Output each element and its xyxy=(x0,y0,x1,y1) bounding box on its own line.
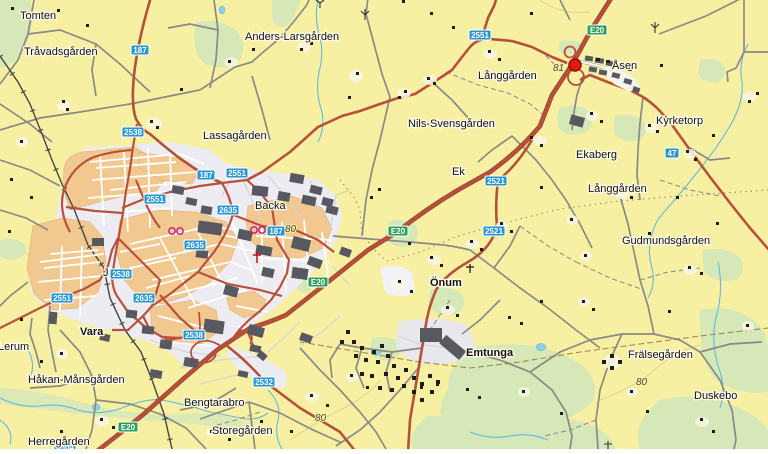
svg-text:2532: 2532 xyxy=(255,378,273,387)
svg-text:2635: 2635 xyxy=(219,206,237,215)
svg-text:Herregården: Herregården xyxy=(28,436,90,448)
svg-text:Duskebo: Duskebo xyxy=(694,390,737,402)
svg-text:2551: 2551 xyxy=(53,294,71,303)
svg-text:Vara: Vara xyxy=(80,326,104,338)
svg-text:2521: 2521 xyxy=(487,177,505,186)
svg-text:2551: 2551 xyxy=(146,195,164,204)
svg-text:2551: 2551 xyxy=(471,31,489,40)
svg-text:2538: 2538 xyxy=(124,128,142,137)
svg-text:47: 47 xyxy=(668,149,677,158)
svg-text:Håkan-Månsgården: Håkan-Månsgården xyxy=(28,374,125,386)
svg-text:Lassagården: Lassagården xyxy=(203,130,267,142)
svg-text:Bengtarabro: Bengtarabro xyxy=(184,397,245,409)
svg-text:80: 80 xyxy=(315,413,327,424)
svg-text:Kyrketorp: Kyrketorp xyxy=(656,115,703,127)
svg-text:Nils-Svensgården: Nils-Svensgården xyxy=(408,118,495,130)
svg-text:Ekaberg: Ekaberg xyxy=(576,149,617,161)
svg-text:Frälsegården: Frälsegården xyxy=(628,349,693,361)
svg-text:2538: 2538 xyxy=(112,270,130,279)
svg-text:Åsen: Åsen xyxy=(612,59,637,72)
svg-text:Storegården: Storegården xyxy=(212,425,273,437)
svg-text:Lerum: Lerum xyxy=(0,341,29,353)
svg-text:Gudmundsgården: Gudmundsgården xyxy=(622,235,710,247)
svg-text:2635: 2635 xyxy=(186,241,204,250)
svg-text:187: 187 xyxy=(269,227,283,236)
svg-text:Anders-Larsgården: Anders-Larsgården xyxy=(245,31,339,43)
svg-text:80: 80 xyxy=(636,377,648,388)
svg-text:187: 187 xyxy=(133,46,147,55)
svg-text:Tråvadsgården: Tråvadsgården xyxy=(24,46,98,58)
svg-text:2551: 2551 xyxy=(228,169,246,178)
svg-text:Backa: Backa xyxy=(255,200,286,212)
svg-text:2521: 2521 xyxy=(485,227,503,236)
svg-text:187: 187 xyxy=(199,171,213,180)
svg-text:Önum: Önum xyxy=(430,276,462,289)
svg-text:E20: E20 xyxy=(590,26,605,35)
svg-text:E20: E20 xyxy=(311,278,326,287)
svg-text:2538: 2538 xyxy=(185,331,203,340)
svg-text:Emtunga: Emtunga xyxy=(466,347,514,359)
svg-text:2635: 2635 xyxy=(135,294,153,303)
svg-text:E20: E20 xyxy=(391,227,406,236)
svg-text:J: J xyxy=(103,267,109,279)
svg-text:Långgården: Långgården xyxy=(478,70,537,82)
svg-text:E20: E20 xyxy=(121,423,136,432)
svg-text:81: 81 xyxy=(553,63,564,74)
svg-text:Ek: Ek xyxy=(452,166,465,178)
svg-text:80: 80 xyxy=(285,224,297,235)
svg-text:Långgården: Långgården xyxy=(588,183,647,195)
svg-text:Tomten: Tomten xyxy=(20,10,56,22)
